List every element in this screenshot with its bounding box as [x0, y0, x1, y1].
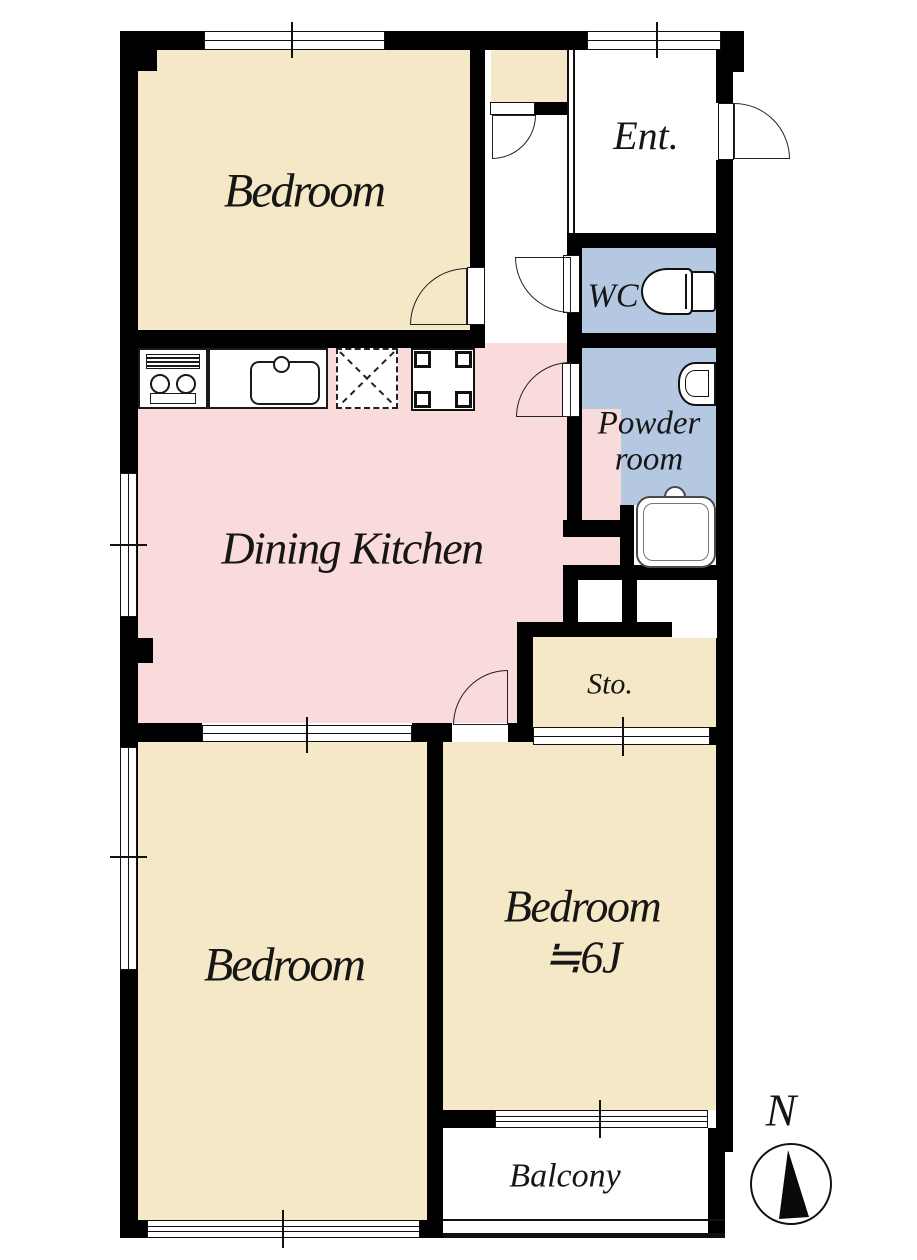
wall-right: [716, 50, 733, 1150]
washer-pad: [414, 351, 431, 368]
window-tick: [599, 1100, 601, 1138]
wall-dk-bottom-mid: [412, 723, 452, 742]
tub-inner: [643, 503, 709, 561]
compass-needle: [779, 1150, 809, 1219]
balcony-rail-outer: [443, 1233, 725, 1238]
wall-storage-door-end: [710, 727, 717, 745]
stove-icon: [138, 348, 208, 409]
label-dining-kitchen: Dining Kitchen: [221, 524, 482, 575]
refrigerator-icon: [336, 348, 398, 409]
stove-burner: [176, 374, 196, 394]
wall-balcony-top: [427, 1110, 495, 1128]
door-leaf-bedroom-nw: [467, 267, 485, 325]
room-closet: [491, 50, 567, 102]
window-tick: [282, 1210, 284, 1248]
wall-service-block-2: [533, 622, 563, 637]
washbasin-icon: [678, 362, 716, 406]
label-storage: Sto.: [587, 668, 633, 701]
washer-pad: [455, 351, 472, 368]
window-tick: [291, 22, 293, 58]
label-wc: WC: [588, 277, 639, 314]
wall-dk-bottom-left: [120, 723, 202, 742]
label-bedroom-sw: Bedroom: [204, 940, 364, 993]
label-bedroom-nw: Bedroom: [224, 166, 384, 219]
door-swing-closet: [492, 115, 536, 159]
wall-notch-dk: [138, 638, 153, 663]
door-swing-wc: [515, 257, 571, 313]
window-bedroom-nw-top: [204, 31, 385, 50]
toilet-icon: [641, 268, 716, 315]
window-tick: [656, 22, 658, 58]
door-leaf-entrance: [718, 103, 734, 160]
window-rail: [495, 1121, 708, 1122]
floor-plan: Bedroom Ent. WC Powder room Dining Kitch…: [0, 0, 917, 1260]
washing-machine-icon: [411, 348, 475, 411]
kitchen-counter: [208, 348, 328, 409]
washer-pad: [455, 391, 472, 408]
compass-icon: [750, 1143, 832, 1225]
label-powder-room: Powder room: [598, 406, 701, 479]
window-tick: [110, 544, 147, 546]
doorway-dk-bedroom-se: [452, 723, 508, 742]
wall-notch-nw: [138, 50, 157, 71]
wall-balcony-right: [708, 1152, 725, 1238]
window-bedroom-sw-left: [120, 747, 137, 970]
label-powder-line2: room: [598, 442, 701, 478]
wall-bath-entry: [563, 520, 620, 537]
wall-wc-top: [567, 233, 733, 248]
wall-left: [120, 31, 138, 1238]
balcony-rail-inner: [443, 1219, 725, 1221]
wall-dk-bottom-right: [508, 723, 533, 742]
window-tick: [306, 717, 308, 753]
toilet-tank: [689, 271, 716, 312]
wall-bottom-left: [120, 1220, 147, 1238]
service-niche-1: [578, 580, 622, 622]
window-tick: [622, 717, 624, 756]
basin-inner: [685, 370, 709, 397]
stove-drawer: [150, 393, 196, 404]
closet-sliding-door: [490, 102, 535, 115]
window-rail: [495, 1116, 708, 1117]
wall-bottom-mid: [420, 1220, 443, 1238]
wall-closet-door-fill: [535, 102, 567, 115]
service-niche-tab: [672, 622, 717, 638]
label-powder-line1: Powder: [598, 406, 701, 442]
washer-pad: [414, 391, 431, 408]
window-bedroom-se-balcony: [495, 1110, 708, 1128]
door-swing-entrance: [734, 103, 790, 159]
faucet-icon: [273, 356, 290, 373]
toilet-seat-line: [685, 274, 687, 309]
wall-wc-bottom: [567, 333, 733, 348]
stove-burner: [150, 374, 170, 394]
label-bedroom-se-line2: ≒6J: [504, 932, 660, 983]
label-bedroom-se-line1: Bedroom: [504, 881, 660, 932]
wall-bedroom-divider: [427, 742, 443, 1238]
stove-grill: [146, 354, 200, 369]
window-tick: [110, 856, 147, 858]
bathtub-icon: [636, 486, 716, 568]
window-entrance-top: [587, 31, 721, 50]
label-bedroom-se: Bedroom ≒6J: [504, 881, 660, 982]
wall-bedroom-nw-bottom: [138, 330, 485, 348]
label-balcony: Balcony: [509, 1157, 620, 1194]
wall-balcony-step: [708, 1128, 733, 1152]
label-entrance: Ent.: [613, 114, 679, 158]
compass-north-label: N: [766, 1086, 797, 1137]
service-niche-2: [637, 580, 717, 622]
wall-partition-entrance: [567, 50, 575, 233]
